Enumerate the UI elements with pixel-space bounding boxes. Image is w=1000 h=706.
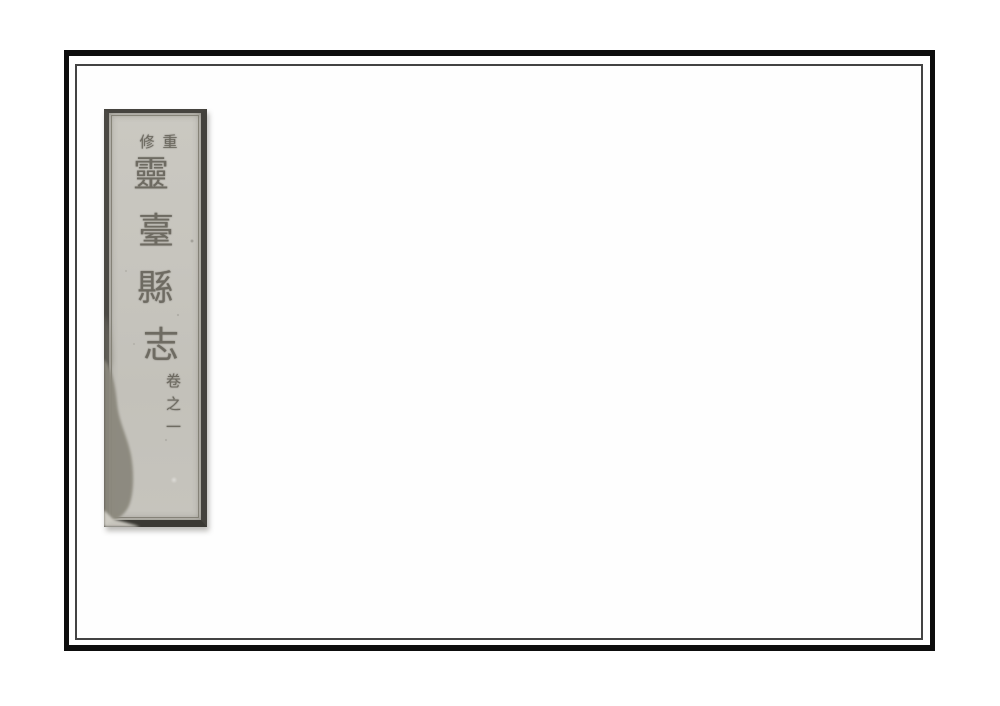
prefix-char-zhong: 重 xyxy=(163,135,178,150)
title-column: 靈 臺 縣 志 xyxy=(109,157,201,364)
spine-title-label: 修 重 靈 臺 縣 志 卷 之 一 xyxy=(104,109,207,527)
title-char-xian: 縣 xyxy=(137,271,173,307)
title-char-tai: 臺 xyxy=(138,214,174,250)
volume-char-juan: 卷 xyxy=(166,374,181,389)
title-char-ling: 靈 xyxy=(133,157,169,193)
prefix-row: 修 重 xyxy=(116,135,201,150)
prefix-char-xiu: 修 xyxy=(139,135,154,150)
scanned-book-page: 修 重 靈 臺 縣 志 卷 之 一 xyxy=(0,0,1000,706)
volume-char-yi: 一 xyxy=(166,420,181,435)
volume-char-zhi: 之 xyxy=(166,397,181,412)
volume-column: 卷 之 一 xyxy=(166,374,181,435)
title-char-zhi: 志 xyxy=(143,328,179,364)
